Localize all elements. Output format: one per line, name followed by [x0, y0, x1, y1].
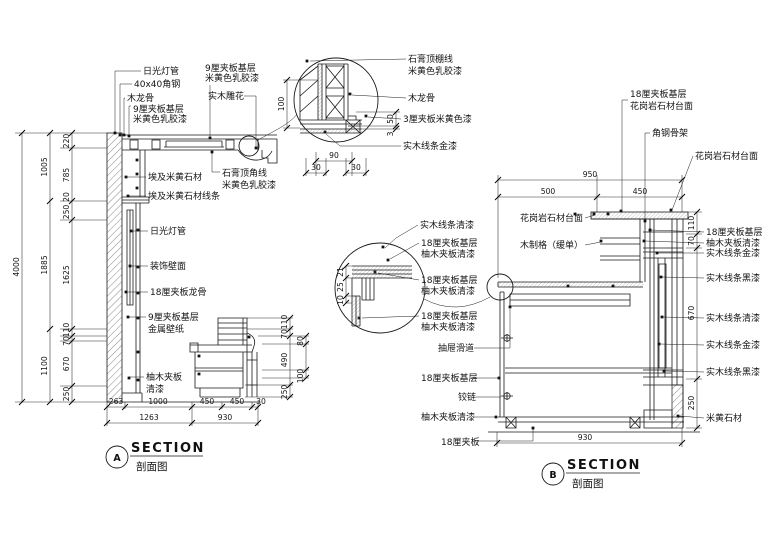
section-a-linework: [107, 114, 297, 402]
label-ply-base-r: 18厘夹板基层: [706, 226, 762, 238]
dim: 110: [62, 323, 71, 338]
dim: 70: [62, 336, 71, 346]
label-teak-clear: 柚木夹板清漆: [421, 248, 475, 260]
dim: 450: [200, 397, 215, 406]
hinge-icon: [501, 334, 513, 400]
label-wood-carving: 实木雕花: [208, 90, 244, 102]
dim: 20: [62, 192, 71, 202]
dim: 1263: [139, 413, 158, 422]
dim: 450: [230, 397, 245, 406]
label-granite-top-left: 花岗岩石材台面: [520, 212, 583, 224]
dim: 25: [336, 282, 345, 292]
dim: 80: [296, 336, 305, 346]
section-b-labels: 18厘夹板基层 花岗岩石材台面 角钢骨架 花岗岩石材台面 花岗岩石材台面 木制格…: [420, 88, 762, 448]
section-caption-b: 剖面图: [572, 477, 604, 490]
dim: 90: [329, 151, 339, 160]
section-b-title: B SECTION 剖面图: [542, 458, 641, 490]
label-latex-paint-2: 米黄色乳胶漆: [205, 72, 259, 84]
dim: 250: [687, 396, 696, 411]
dim: 220: [62, 134, 71, 149]
label-teak-clear: 柚木夹板清漆: [421, 321, 475, 333]
lower-counter: [488, 282, 700, 432]
label-teak-clear: 柚木夹板清漆: [421, 411, 475, 423]
dim: 110: [280, 315, 289, 330]
dim: 450: [633, 187, 648, 196]
dim: 30: [311, 163, 321, 172]
dim: 950: [583, 170, 598, 179]
granite-countertop: [591, 212, 688, 219]
label-deco-wall: 装饰壁面: [150, 260, 186, 272]
dim: 50: [386, 114, 395, 124]
dim: 490: [280, 353, 289, 368]
label-lamp-2: 日光灯管: [150, 225, 186, 237]
dim: 250: [62, 205, 71, 220]
section-letter-a: A: [113, 453, 121, 464]
cad-section-drawing: 日光灯管 40x40角钢 木龙骨 9厘夹板基层 米黄色乳胶漆 9厘夹板基层 米黄…: [0, 0, 780, 551]
label-drawer-slide: 抽屉滑道: [438, 342, 474, 354]
section-title-a: SECTION: [131, 441, 205, 456]
label-wood-keel: 木龙骨: [408, 92, 435, 104]
lower-counter-hatch: [498, 282, 643, 287]
detail-callout-leader-a: [258, 114, 297, 140]
label-ply-base: 18厘夹板基层: [421, 372, 477, 384]
label-lamp: 日光灯管: [143, 65, 179, 77]
label-plywood-base: 9厘夹板基层: [133, 103, 184, 115]
dim: 100: [296, 369, 305, 384]
label-steel-frame: 角钢骨架: [652, 127, 688, 139]
label-beige-stone-trim: 埃及米黄石材线条: [148, 190, 220, 202]
dim: 250: [280, 385, 289, 400]
label-teak-clear: 柚木夹板清漆: [421, 285, 475, 297]
label-wood-keel: 木龙骨: [127, 92, 154, 104]
dim: 1625: [62, 265, 71, 284]
ply-hatch: [318, 64, 322, 120]
section-caption-a: 剖面图: [136, 460, 168, 473]
dim: 110: [687, 216, 696, 231]
label-wood-trim-clear: 实木线条清漆: [420, 219, 474, 231]
dim: 250: [62, 387, 71, 402]
label-cornice-paint: 米黄色乳胶漆: [222, 179, 276, 191]
dim: 100: [277, 97, 286, 112]
label-plywood-base-2: 9厘夹板基层: [205, 62, 256, 74]
section-title-b: SECTION: [567, 458, 641, 473]
label-3mm-ply: 3厘夹板米黄色漆: [403, 113, 472, 125]
section-a-title: A SECTION 剖面图: [106, 441, 205, 473]
label-plywood-base-3: 9厘夹板基层: [148, 311, 199, 323]
dim: 1885: [40, 255, 49, 274]
dim-total-height: 4000: [12, 257, 21, 276]
dim: 263: [109, 397, 124, 406]
label-teak-plywood: 柚木夹板: [146, 371, 182, 383]
label-ply-base: 18厘夹板基层: [421, 310, 477, 322]
label-gold-trim-r: 实木线条金漆: [706, 339, 760, 351]
label-gypsum-cornice: 石膏顶角线: [222, 167, 267, 179]
label-clear-lacquer: 清漆: [146, 383, 164, 395]
label-black-trim-r: 实木线条黑漆: [706, 272, 760, 284]
ply-hatch: [352, 266, 412, 278]
dim: 1005: [40, 157, 49, 176]
dim: 70: [280, 329, 289, 339]
label-beige-stone-r: 米黄石材: [706, 412, 742, 424]
label-gold-trim: 实木线条金漆: [403, 140, 457, 152]
label-18mm-ply: 18厘夹板: [441, 436, 479, 448]
label-gold-trim-r: 实木线条金漆: [706, 247, 760, 259]
dim: 21: [336, 267, 345, 277]
dim: 70: [687, 236, 696, 246]
detail-callout-leader-b: [424, 297, 490, 307]
wall-hatch: [107, 133, 122, 402]
label-clear-trim-r: 实木线条清漆: [706, 312, 760, 324]
dim: 1000: [148, 397, 167, 406]
drawing-svg: 日光灯管 40x40角钢 木龙骨 9厘夹板基层 米黄色乳胶漆 9厘夹板基层 米黄…: [0, 0, 780, 551]
detail-circle-b: [335, 243, 425, 333]
dim: 1100: [40, 356, 49, 375]
dim: 10: [336, 295, 345, 305]
dim: 670: [687, 306, 696, 321]
label-plywood-keel: 18厘夹板龙骨: [150, 286, 206, 298]
beige-stone-base: [672, 385, 683, 428]
dim: 930: [218, 413, 233, 422]
label-gypsum-ceiling-line: 石膏顶棚线: [408, 53, 453, 65]
label-wood-grid: 木制格（缓单）: [520, 239, 583, 251]
dim: 785: [62, 168, 71, 183]
wall-panel: [122, 203, 142, 402]
label-ply-base-top: 18厘夹板基层: [630, 88, 686, 100]
label-latex-paint: 米黄色乳胶漆: [133, 113, 187, 125]
label-angle-steel: 40x40角钢: [134, 78, 180, 90]
label-metal-wallpaper: 金属壁纸: [148, 323, 184, 335]
label-granite-top: 花岗岩石材台面: [630, 100, 693, 112]
label-granite-top-right: 花岗岩石材台面: [695, 150, 758, 162]
label-black-trim-r: 实木线条黑漆: [706, 366, 760, 378]
detail-b: 21 25 10: [335, 243, 425, 333]
dim: 30: [351, 163, 361, 172]
dim: 500: [541, 187, 556, 196]
label-ply-base: 18厘夹板基层: [421, 274, 477, 286]
dim: 30: [256, 397, 266, 406]
dim: 3: [386, 131, 395, 136]
dim: 670: [62, 357, 71, 372]
dim: 930: [578, 433, 593, 442]
ply-hatch: [300, 129, 362, 133]
label-teak-clear-r: 柚木夹板清漆: [706, 237, 760, 249]
label-latex-paint: 米黄色乳胶漆: [408, 65, 462, 77]
label-ply-base: 18厘夹板基层: [421, 237, 477, 249]
label-beige-stone: 埃及米黄石材: [148, 171, 202, 183]
section-b-dimensions: 950 500 450 110 70 670 250 930: [494, 170, 702, 447]
section-letter-b: B: [549, 470, 556, 481]
detail-a: 石膏顶棚线 米黄色乳胶漆 木龙骨 3厘夹板米黄色漆 实木线条金漆 100 50 …: [277, 53, 472, 176]
label-hinge: 铰链: [458, 391, 476, 403]
